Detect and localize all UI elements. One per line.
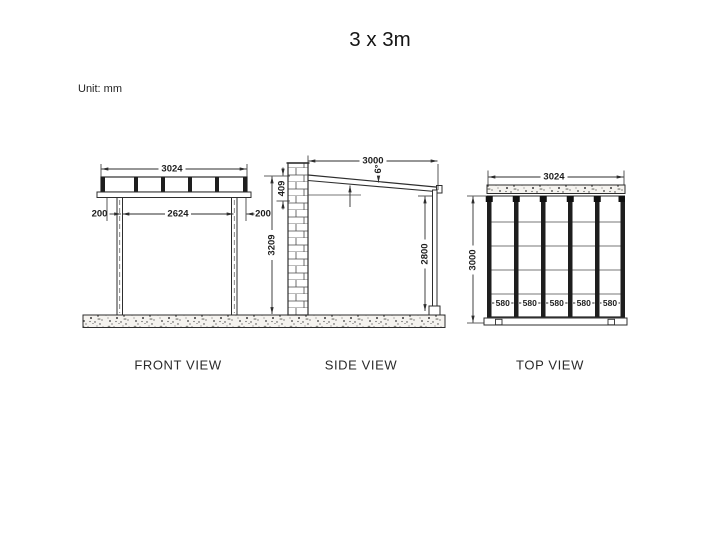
svg-text:3024: 3024 [161, 164, 183, 175]
front-dim-right-overhang: 200 [255, 209, 271, 220]
side-dim-post-height: 2800 [418, 196, 432, 311]
front-roof-beam [101, 177, 247, 192]
front-view-label: FRONT VIEW [134, 358, 222, 373]
front-fascia [97, 192, 251, 198]
front-dim-overall-width: 3024 [101, 164, 247, 178]
side-roof-top-line [308, 175, 441, 188]
svg-text:3000: 3000 [468, 249, 479, 270]
svg-text:3024: 3024 [543, 172, 565, 183]
page-title: 3 x 3m [349, 28, 411, 51]
side-view-label: SIDE VIEW [325, 358, 398, 373]
ground-slab [83, 315, 445, 328]
brick-wall [288, 163, 308, 315]
svg-text:580: 580 [550, 298, 564, 308]
drawing-sheet: 3 x 3m Unit: mm 3024 200 [0, 0, 720, 554]
technical-drawing: 3 x 3m Unit: mm 3024 200 [0, 0, 720, 554]
unit-note: Unit: mm [78, 83, 122, 95]
top-bottom-rail [484, 318, 627, 325]
top-grid-battens [487, 222, 625, 294]
top-view: 3024 3000 580 580 580 580 580 [467, 171, 627, 373]
top-dim-overall-depth: 3000 [467, 196, 487, 323]
side-post [433, 190, 438, 306]
svg-text:580: 580 [496, 298, 510, 308]
top-rafter-brackets [486, 196, 625, 202]
svg-text:580: 580 [523, 298, 537, 308]
svg-text:580: 580 [603, 298, 617, 308]
svg-text:409: 409 [277, 181, 288, 197]
svg-text:2800: 2800 [420, 243, 431, 264]
top-wall-band [487, 185, 625, 194]
front-view: 3024 200 2624 200 FRONT VIEW [92, 164, 271, 373]
svg-text:6°: 6° [373, 164, 384, 173]
side-view: 3000 3209 409 6° 2800 S [264, 156, 442, 373]
side-post-foot [429, 306, 440, 315]
top-foot-right [608, 319, 615, 325]
top-dim-panel-widths: 580 580 580 580 580 [492, 298, 620, 308]
top-dim-overall-width: 3024 [488, 171, 624, 186]
side-roof-bottom-line [308, 181, 441, 193]
svg-text:3209: 3209 [267, 234, 278, 255]
front-dim-left-overhang: 200 [92, 209, 108, 220]
svg-text:580: 580 [577, 298, 591, 308]
top-foot-left [496, 319, 503, 325]
front-dim-post-spacing: 2624 [167, 209, 189, 220]
top-view-label: TOP VIEW [516, 358, 584, 373]
